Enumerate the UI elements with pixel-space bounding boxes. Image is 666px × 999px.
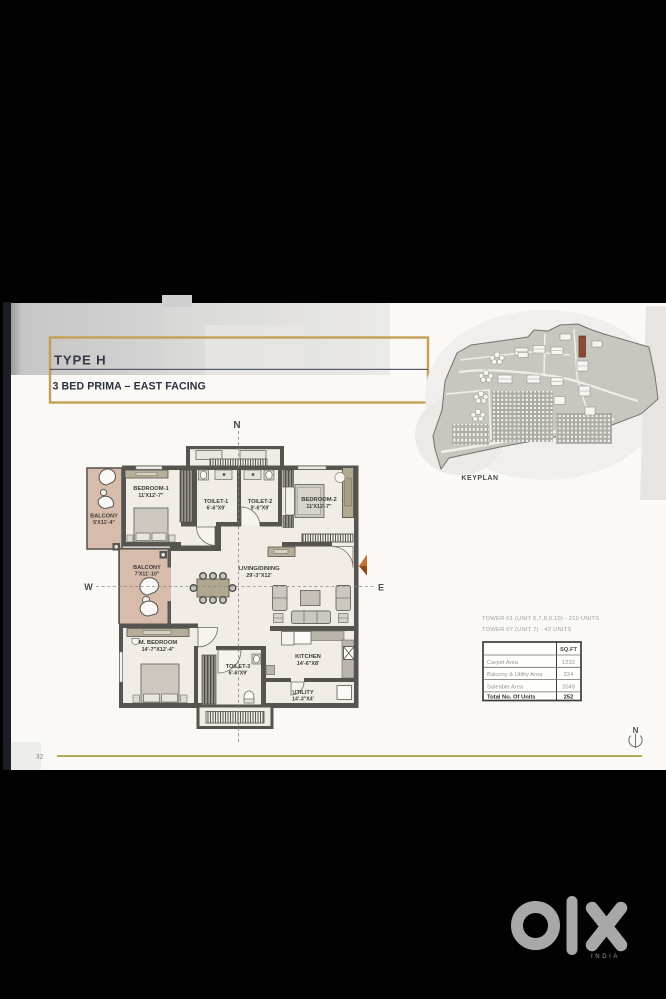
svg-text:11'X12'-7": 11'X12'-7" [306,504,332,510]
svg-text:KITCHEN: KITCHEN [295,654,321,660]
svg-text:6'-6"X9': 6'-6"X9' [229,671,248,677]
svg-text:LIVING/DINING: LIVING/DINING [238,566,280,572]
svg-text:Saleable Area: Saleable Area [487,684,524,690]
svg-text:SQ.FT: SQ.FT [560,647,578,653]
svg-text:W: W [84,582,93,592]
svg-text:TOILET-2: TOILET-2 [248,499,272,505]
svg-text:32: 32 [36,754,44,761]
svg-text:Carpet Area: Carpet Area [487,660,519,666]
svg-text:BEDROOM-2: BEDROOM-2 [301,497,336,503]
svg-text:224: 224 [564,672,574,678]
svg-text:BALCONY: BALCONY [90,514,118,520]
svg-text:BALCONY: BALCONY [133,565,161,571]
svg-text:252: 252 [564,694,574,700]
svg-text:9'-6"X9': 9'-6"X9' [251,506,270,512]
svg-text:11'X12'-7": 11'X12'-7" [138,493,164,499]
svg-text:14'-7"X12'-4": 14'-7"X12'-4" [142,647,175,653]
svg-text:UTILITY: UTILITY [292,690,313,696]
svg-text:3 BED PRIMA – EAST FACING: 3 BED PRIMA – EAST FACING [53,381,206,393]
svg-text:M. BEDROOM: M. BEDROOM [139,640,177,646]
svg-text:Total No. Of Units: Total No. Of Units [487,694,536,700]
svg-text:TYPE H: TYPE H [54,353,106,368]
svg-text:TOILET-1: TOILET-1 [204,499,228,505]
svg-text:TOILET-3: TOILET-3 [226,664,250,670]
svg-text:INDIA: INDIA [591,954,620,960]
svg-text:5'X11'-4": 5'X11'-4" [93,520,115,526]
svg-text:TOWER 07 (UNIT 7) - 42 UNITS: TOWER 07 (UNIT 7) - 42 UNITS [482,627,571,633]
svg-text:BEDROOM-1: BEDROOM-1 [133,486,169,492]
svg-text:TOWER 01 (UNIT 6,7,8,9,10) - 2: TOWER 01 (UNIT 6,7,8,9,10) - 210 UNITS [482,616,599,622]
svg-text:1232: 1232 [562,660,575,666]
svg-text:N: N [233,420,240,431]
svg-text:7'X11'-10": 7'X11'-10" [135,572,160,578]
svg-text:6'-6"X9': 6'-6"X9' [207,506,226,512]
svg-text:14'-6"X8': 14'-6"X8' [297,661,320,667]
svg-text:KEYPLAN: KEYPLAN [461,475,498,482]
svg-text:14'-3"X4': 14'-3"X4' [292,697,314,703]
svg-text:29'-3"X12': 29'-3"X12' [246,573,272,579]
svg-text:E: E [378,583,384,593]
svg-text:2049: 2049 [562,684,575,690]
svg-text:Balcony & Utility Area: Balcony & Utility Area [487,672,543,678]
